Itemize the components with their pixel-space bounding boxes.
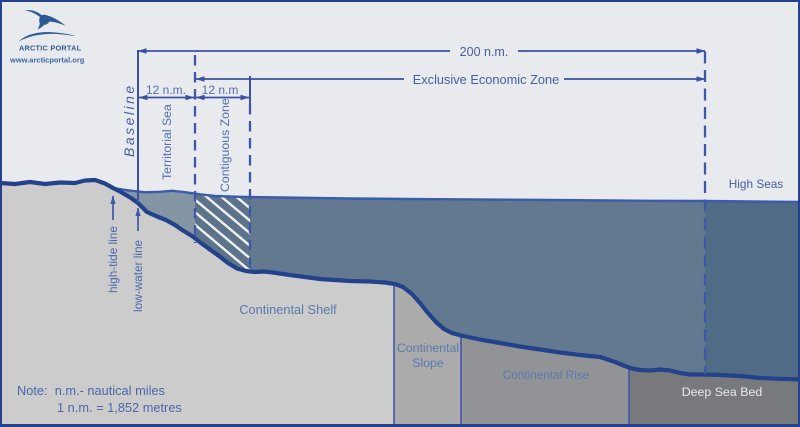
svg-text:Continental Shelf: Continental Shelf — [239, 302, 337, 317]
svg-text:Continental Rise: Continental Rise — [503, 368, 590, 382]
svg-text:Exclusive Economic Zone: Exclusive Economic Zone — [413, 72, 560, 87]
svg-text:Continental: Continental — [397, 341, 459, 355]
svg-text:low-water line: low-water line — [131, 239, 145, 312]
svg-text:Territorial Sea: Territorial Sea — [160, 104, 174, 180]
svg-text:Deep Sea Bed: Deep Sea Bed — [682, 385, 763, 399]
svg-text:200 n.m.: 200 n.m. — [460, 45, 509, 59]
svg-text:ARCTIC PORTAL: ARCTIC PORTAL — [19, 44, 82, 53]
svg-text:High Seas: High Seas — [729, 177, 784, 191]
svg-text:12 n.m: 12 n.m — [202, 83, 239, 97]
svg-text:www.arcticportal.org: www.arcticportal.org — [9, 56, 85, 65]
svg-text:Slope: Slope — [412, 356, 444, 370]
svg-text:1 n.m. = 1,852 metres: 1 n.m. = 1,852 metres — [57, 400, 182, 415]
svg-text:high-tide line: high-tide line — [106, 226, 120, 293]
svg-text:Note: n.m.- nautical miles: Note: n.m.- nautical miles — [17, 383, 165, 398]
svg-text:Baseline: Baseline — [121, 83, 137, 157]
svg-text:12 n.m.: 12 n.m. — [146, 83, 186, 97]
svg-text:Contiguous Zone: Contiguous Zone — [218, 98, 232, 192]
